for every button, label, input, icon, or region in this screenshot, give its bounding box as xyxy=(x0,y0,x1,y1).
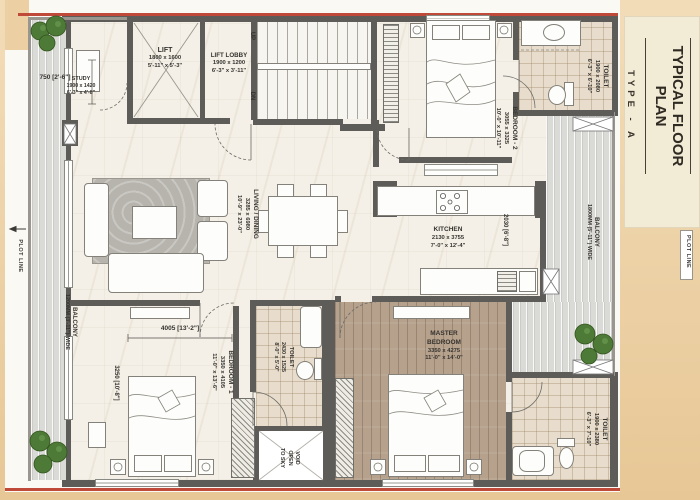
wall xyxy=(253,426,329,431)
wall xyxy=(610,372,618,484)
title-block: TYPICAL FLOOR PLAN TYPE - A xyxy=(625,38,691,174)
plot-line-bottom xyxy=(5,488,620,491)
toilet-top-label: TOILET 1900 x 2080 6'-3" x 6'-10" xyxy=(585,40,609,112)
balcony-left-label: BALCONY 1200MM (3'-11") WIDE xyxy=(63,270,78,374)
stove-hob xyxy=(436,190,468,214)
lift-lobby-label: LIFT LOBBY 1900 x 1200 6'-3" x 3'-11" xyxy=(201,52,257,76)
balcony-rail xyxy=(28,17,130,20)
stair-dn-label: DN xyxy=(248,86,256,106)
wash-basin xyxy=(519,450,545,472)
living-dining-label: LIVING / DINING 3285 x 6980 10'-9" x 23'… xyxy=(235,178,259,250)
bedroom1-label: BEDROOM - 1 3350 x 4105 11'-0" x 13'-6" xyxy=(210,336,234,408)
bathtub xyxy=(300,306,322,348)
kitchen-label: KITCHEN 2130 x 3755 7'-0" x 12'-4" xyxy=(412,226,484,250)
dim-2030-label: 2030 [6'-8"] xyxy=(501,202,509,258)
wall xyxy=(66,300,200,306)
pillow xyxy=(428,455,460,472)
wall xyxy=(373,120,379,167)
wardrobe-bedroom1 xyxy=(231,398,255,478)
master-bedroom-label: MASTER BEDROOM 3350 x 4275 11'-0" x 14'-… xyxy=(404,330,484,363)
wall xyxy=(513,16,519,60)
cabinet xyxy=(88,422,106,448)
wall xyxy=(506,296,512,382)
plot-line-left-label: PLOT LINE xyxy=(16,233,23,279)
bedside-table xyxy=(466,459,482,475)
bedside-table xyxy=(370,459,386,475)
wall xyxy=(253,119,343,125)
wall xyxy=(506,372,614,378)
floor-plan-page: STUDY 1900 x 1420 6'-3" x 4'-8" LIFT 180… xyxy=(0,0,700,500)
dining-chair xyxy=(310,184,327,197)
wc-bowl xyxy=(559,447,574,469)
dining-chair xyxy=(310,245,327,258)
wall xyxy=(250,306,256,392)
bedside-table xyxy=(497,23,512,38)
toilet-mid-label: TOILET 2430 x 1525 8'-0" x 5'-0" xyxy=(272,324,294,390)
dim-3250-label: 3250 [10'-8"] xyxy=(112,354,120,412)
dining-chair xyxy=(277,245,294,258)
wall xyxy=(62,120,78,146)
dresser-master xyxy=(393,306,470,319)
wardrobe-master xyxy=(335,378,354,478)
wc-bowl xyxy=(296,361,314,380)
dining-table xyxy=(268,196,338,246)
bedside-table xyxy=(110,459,126,475)
wash-basin xyxy=(543,24,565,41)
pillow xyxy=(462,25,490,40)
balcony-rail xyxy=(28,17,31,481)
wc-bowl xyxy=(548,85,566,105)
balcony-right-floor-lower xyxy=(512,302,612,376)
sofa-left xyxy=(84,183,109,257)
wall xyxy=(371,16,377,126)
coffee-table xyxy=(132,206,177,239)
dining-chair xyxy=(258,210,269,233)
dining-chair xyxy=(277,184,294,197)
window xyxy=(382,479,474,487)
void-label: VOID OPEN TO SKY xyxy=(278,436,300,480)
wall xyxy=(372,296,512,302)
wc-tank xyxy=(557,438,575,447)
pillow xyxy=(134,455,162,472)
plot-line-right-box: PLOT LINE xyxy=(680,230,693,280)
wall xyxy=(127,118,230,124)
bedside-table xyxy=(198,459,214,475)
bedroom2-label: BEDROOM - 2 3055 x 3325 10'-0" x 10'-11" xyxy=(494,92,518,164)
sheet-corner xyxy=(5,0,29,50)
pillow xyxy=(432,25,460,40)
dish-rack xyxy=(497,271,517,292)
stair-up-label: UP xyxy=(248,26,256,46)
wall xyxy=(335,296,341,302)
dim-4005-label: 4005 [13'-2"] xyxy=(128,325,232,334)
wall xyxy=(328,300,335,482)
kitchen-sink xyxy=(519,271,536,292)
plan-subtitle: TYPE - A xyxy=(625,38,636,174)
stair-rail xyxy=(257,63,371,70)
window xyxy=(64,160,73,288)
lift-label: LIFT 1800 x 1600 5'-11" x 5'-3" xyxy=(134,46,196,71)
balcony-right-label: BALCONY 1800MM (5'-11") WIDE xyxy=(585,180,600,284)
wall xyxy=(612,16,618,116)
wc-tank xyxy=(314,358,322,380)
window xyxy=(424,164,498,176)
pillow xyxy=(394,455,426,472)
dining-chair xyxy=(337,210,348,233)
wall xyxy=(127,16,133,120)
plan-title: TYPICAL FLOOR PLAN xyxy=(645,38,691,174)
balcony-right-floor-upper xyxy=(546,116,612,304)
bedside-table xyxy=(410,23,425,38)
window xyxy=(95,479,179,487)
shaft-duct xyxy=(383,24,399,123)
pillow xyxy=(164,455,192,472)
plot-line-right-label: PLOT LINE xyxy=(685,235,691,277)
dresser-bedroom1 xyxy=(130,307,190,319)
balcony-rail xyxy=(612,112,615,376)
dim-750-label: 750 [2'-6"] xyxy=(22,74,88,83)
sofa-main xyxy=(108,253,204,293)
armchair-1 xyxy=(197,180,228,217)
wall xyxy=(540,186,546,302)
toilet-master-label: TOILET 1900 x 2380 6'-3" x 7'-10" xyxy=(584,396,608,462)
